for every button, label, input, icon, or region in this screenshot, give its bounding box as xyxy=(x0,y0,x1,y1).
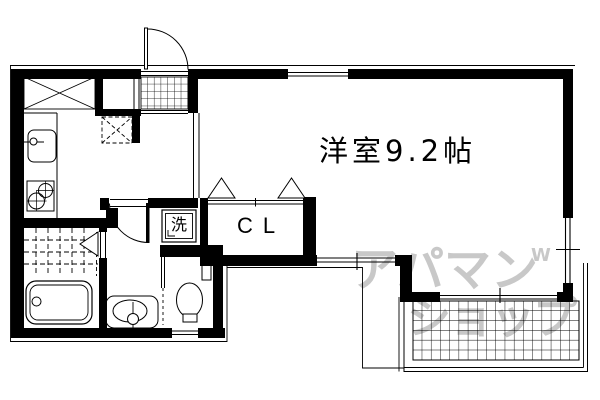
washing-machine-label: 洗 xyxy=(171,217,187,233)
balcony xyxy=(399,263,588,372)
entrance-door-icon xyxy=(145,28,189,70)
shoe-cabinet-icon xyxy=(24,77,95,109)
toilet-icon xyxy=(177,259,212,322)
stove-icon xyxy=(27,181,55,211)
balcony-hatch-floor xyxy=(413,301,579,360)
toilet-door-icon xyxy=(162,257,165,325)
washbasin-icon xyxy=(106,296,158,330)
floorplan-linework xyxy=(0,0,600,400)
bathtub-icon xyxy=(26,281,92,324)
refrigerator-icon xyxy=(102,117,132,143)
entrance-tile-floor xyxy=(141,77,188,114)
closet-label: CL xyxy=(237,215,285,237)
bath-tile-floor xyxy=(24,228,98,276)
main-room-label: 洋室9.2帖 xyxy=(319,137,476,166)
floorplan: アパマン W ショップ xyxy=(0,0,600,400)
closet-doors-icon xyxy=(208,178,305,207)
